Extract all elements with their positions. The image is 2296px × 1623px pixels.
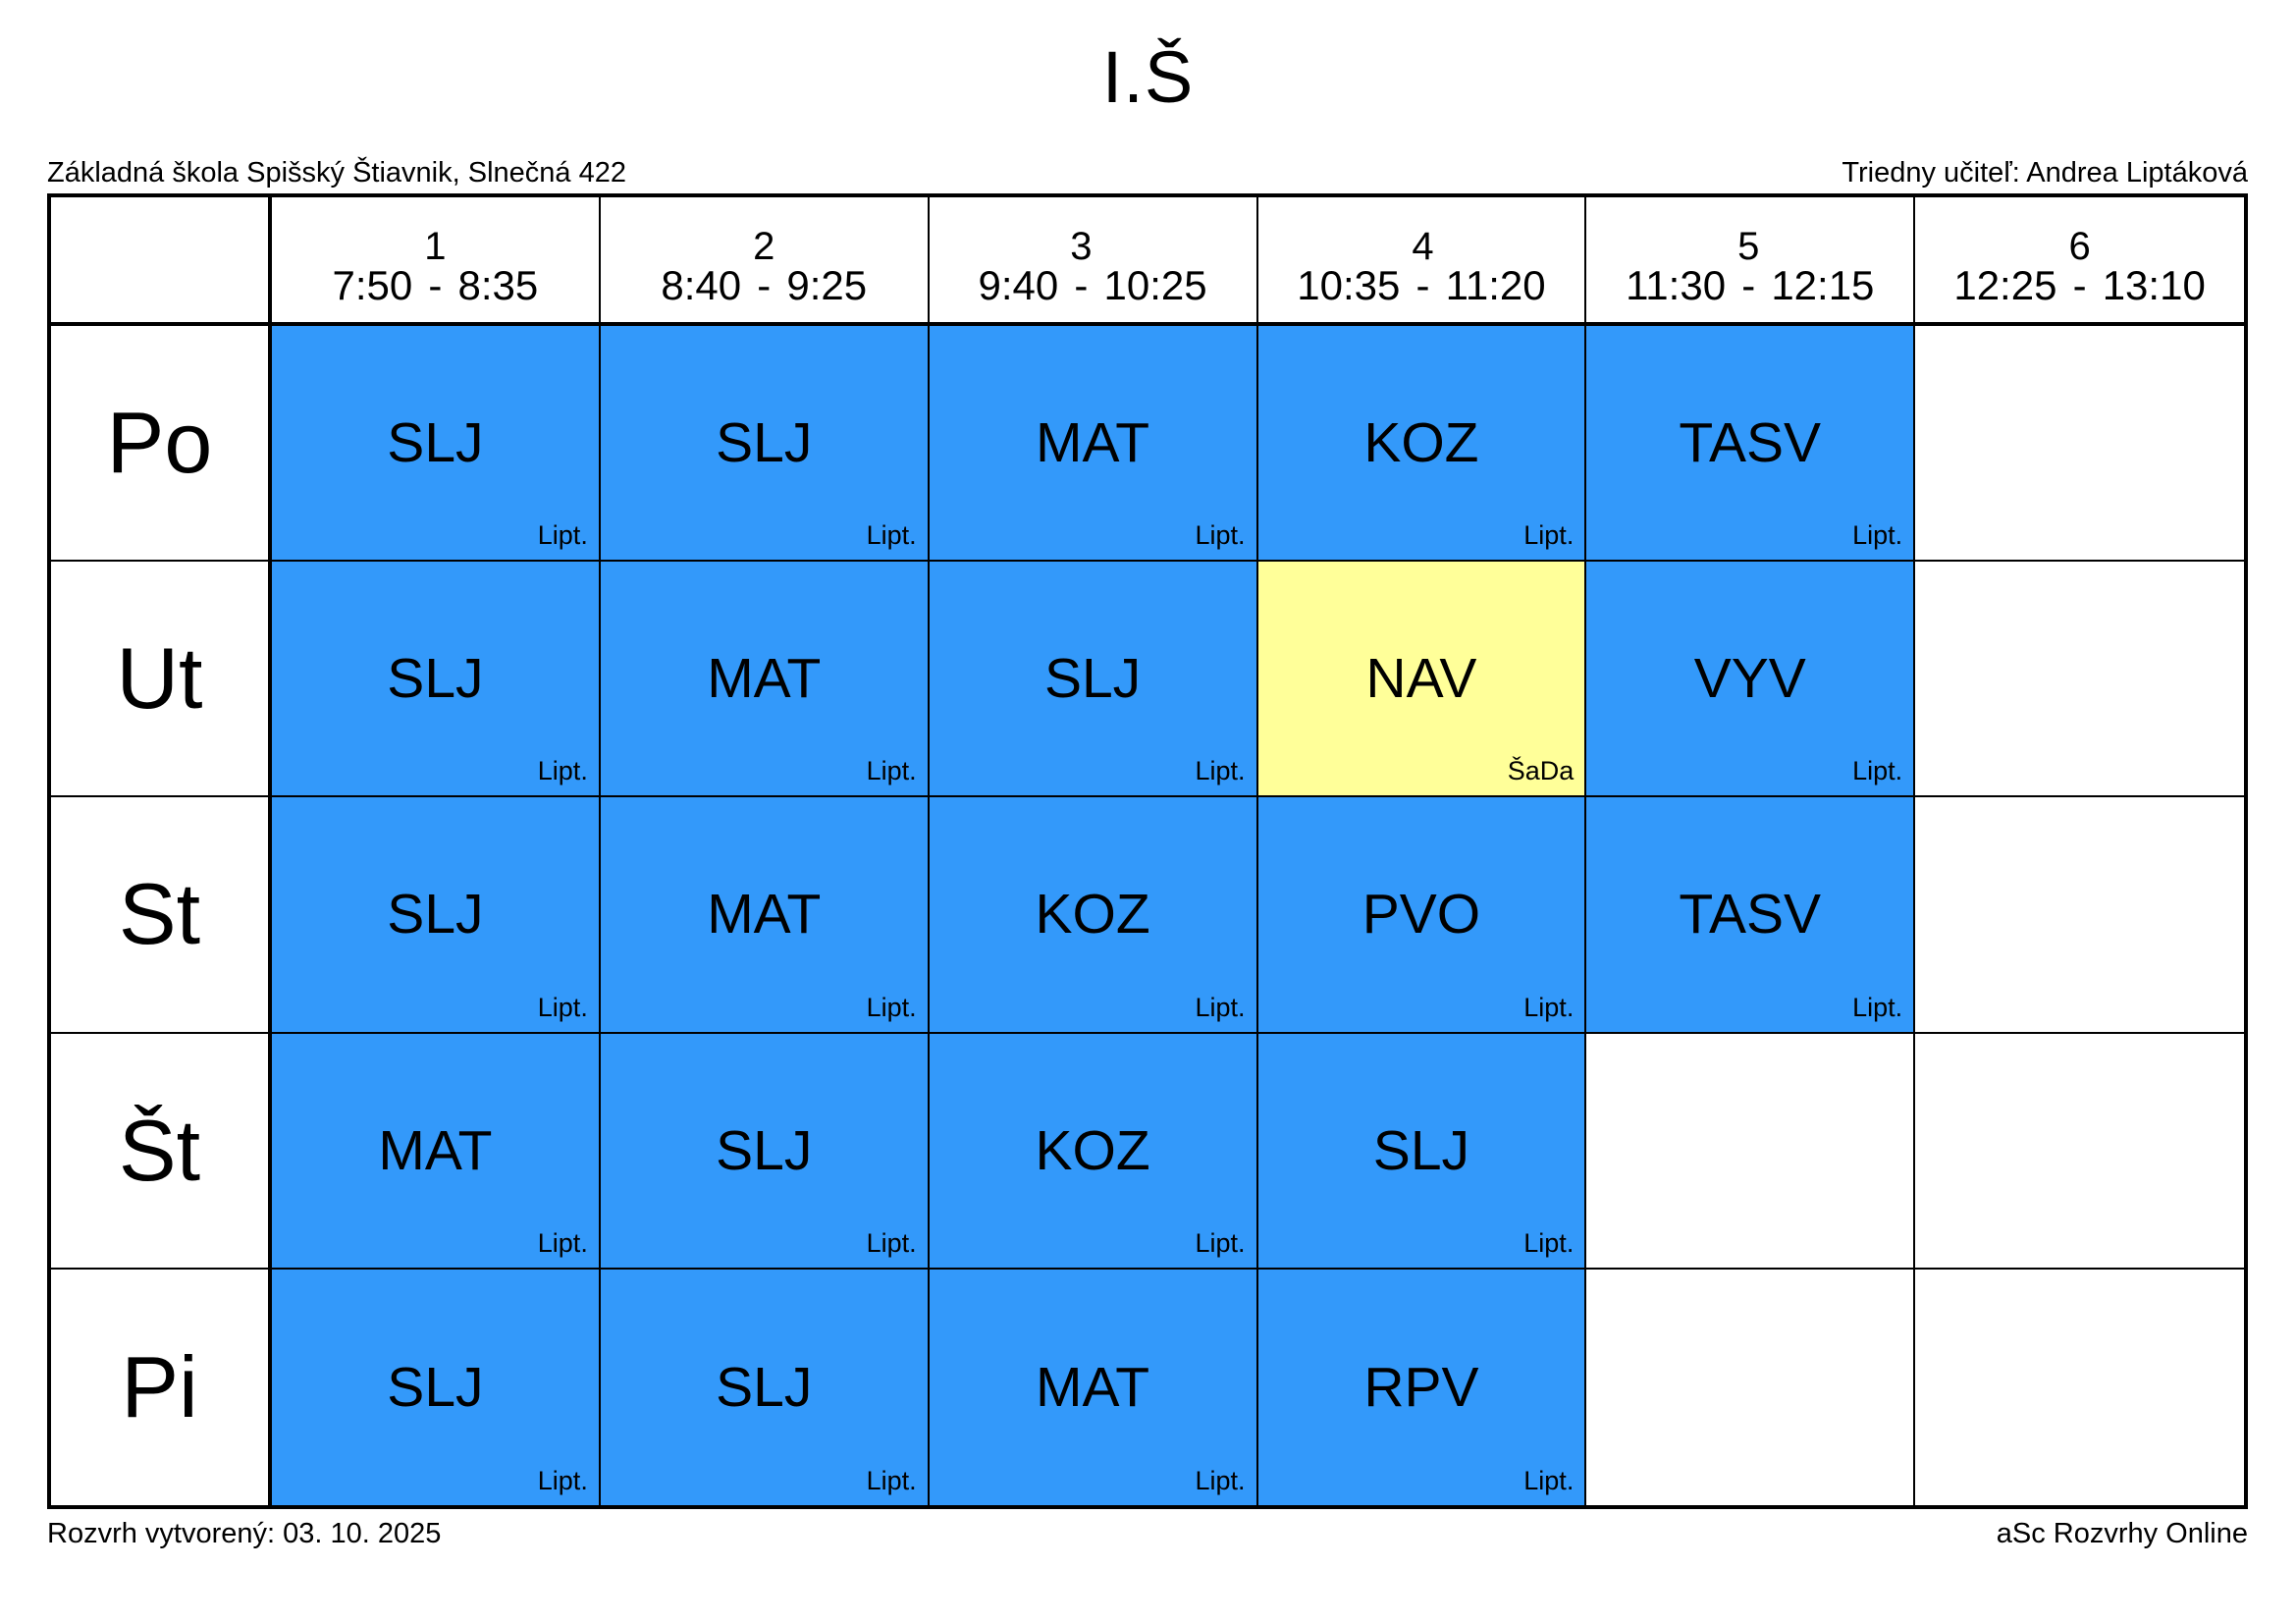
lesson-cell: MAT Lipt. bbox=[930, 326, 1258, 562]
class-teacher: Triedny učiteľ: Andrea Liptáková bbox=[1842, 157, 2248, 189]
period-number: 3 bbox=[1070, 228, 1092, 265]
empty-cell bbox=[1586, 1034, 1915, 1270]
day-label-cell-pi: Pi bbox=[51, 1270, 272, 1505]
school-name: Základná škola Spišský Štiavnik, Slnečná… bbox=[47, 157, 626, 189]
period-number-dash: 6 - bbox=[2068, 228, 2090, 306]
lesson-cell: SLJ Lipt. bbox=[1258, 1034, 1587, 1270]
created-date: Rozvrh vytvorený: 03. 10. 2025 bbox=[47, 1518, 441, 1550]
period-number: 2 bbox=[753, 228, 774, 265]
teacher-label: Lipt. bbox=[1195, 1466, 1245, 1496]
lesson-cell: SLJ Lipt. bbox=[272, 1270, 601, 1505]
period-end-time: 9:25 bbox=[786, 265, 867, 306]
time-separator: - bbox=[1741, 265, 1755, 306]
period-number-dash: 1 - bbox=[424, 228, 446, 306]
period-number-dash: 5 - bbox=[1737, 228, 1759, 306]
brand-label: aSc Rozvrhy Online bbox=[1997, 1518, 2248, 1550]
teacher-label: Lipt. bbox=[1523, 1466, 1574, 1496]
teacher-label: ŠaDa bbox=[1508, 756, 1575, 786]
day-label: Ut bbox=[51, 562, 268, 795]
period-start-time: 9:40 bbox=[979, 265, 1059, 306]
period-header-1: 7:50 1 - 8:35 bbox=[272, 197, 601, 326]
time-separator: - bbox=[428, 265, 442, 306]
empty-cell bbox=[1915, 1270, 2244, 1505]
lesson-cell: MAT Lipt. bbox=[930, 1270, 1258, 1505]
teacher-label: Lipt. bbox=[538, 756, 588, 786]
empty-cell bbox=[1586, 1270, 1915, 1505]
empty-cell bbox=[1915, 326, 2244, 562]
period-header-3: 9:40 3 - 10:25 bbox=[930, 197, 1258, 326]
teacher-label: Lipt. bbox=[867, 1228, 917, 1259]
lesson-cell: VYV Lipt. bbox=[1586, 562, 1915, 797]
lesson-cell: SLJ Lipt. bbox=[601, 1034, 930, 1270]
lesson-cell: SLJ Lipt. bbox=[930, 562, 1258, 797]
teacher-label: Lipt. bbox=[538, 520, 588, 551]
day-label-cell-ut: Ut bbox=[51, 562, 272, 797]
period-time-range: 7:50 1 - 8:35 bbox=[272, 197, 599, 322]
day-label-cell-po: Po bbox=[51, 326, 272, 562]
lesson-cell: RPV Lipt. bbox=[1258, 1270, 1587, 1505]
time-separator: - bbox=[757, 265, 771, 306]
teacher-label: Lipt. bbox=[1195, 756, 1245, 786]
period-start-time: 10:35 bbox=[1297, 265, 1400, 306]
page-title: I.Š bbox=[0, 37, 2296, 117]
day-label: St bbox=[51, 797, 268, 1031]
lesson-cell: SLJ Lipt. bbox=[601, 326, 930, 562]
lesson-cell: TASV Lipt. bbox=[1586, 326, 1915, 562]
teacher-label: Lipt. bbox=[1523, 520, 1574, 551]
lesson-cell: SLJ Lipt. bbox=[601, 1270, 930, 1505]
lesson-cell: MAT Lipt. bbox=[601, 797, 930, 1033]
period-time-range: 8:40 2 - 9:25 bbox=[601, 197, 928, 322]
lesson-cell: SLJ Lipt. bbox=[272, 562, 601, 797]
period-header-2: 8:40 2 - 9:25 bbox=[601, 197, 930, 326]
lesson-cell: TASV Lipt. bbox=[1586, 797, 1915, 1033]
lesson-cell: MAT Lipt. bbox=[601, 562, 930, 797]
period-start-time: 11:30 bbox=[1626, 265, 1726, 306]
period-time-range: 9:40 3 - 10:25 bbox=[930, 197, 1256, 322]
corner-cell bbox=[51, 197, 272, 326]
period-header-6: 12:25 6 - 13:10 bbox=[1915, 197, 2244, 326]
period-end-time: 13:10 bbox=[2103, 265, 2206, 306]
teacher-label: Lipt. bbox=[867, 1466, 917, 1496]
teacher-label: Lipt. bbox=[538, 1228, 588, 1259]
teacher-label: Lipt. bbox=[1852, 756, 1902, 786]
empty-cell bbox=[1915, 1034, 2244, 1270]
time-separator: - bbox=[2073, 265, 2087, 306]
empty-cell bbox=[1915, 797, 2244, 1033]
teacher-label: Lipt. bbox=[1195, 1228, 1245, 1259]
lesson-cell: KOZ Lipt. bbox=[930, 1034, 1258, 1270]
day-label-cell-št: Št bbox=[51, 1034, 272, 1270]
day-label: Po bbox=[51, 326, 268, 560]
teacher-label: Lipt. bbox=[867, 756, 917, 786]
period-start-time: 8:40 bbox=[661, 265, 741, 306]
period-end-time: 8:35 bbox=[458, 265, 539, 306]
period-end-time: 10:25 bbox=[1104, 265, 1207, 306]
period-number-dash: 4 - bbox=[1412, 228, 1433, 306]
teacher-label: Lipt. bbox=[1523, 993, 1574, 1023]
lesson-cell: KOZ Lipt. bbox=[930, 797, 1258, 1033]
teacher-label: Lipt. bbox=[1852, 993, 1902, 1023]
teacher-label: Lipt. bbox=[1852, 520, 1902, 551]
lesson-cell: SLJ Lipt. bbox=[272, 326, 601, 562]
lesson-cell: SLJ Lipt. bbox=[272, 797, 601, 1033]
lesson-cell: KOZ Lipt. bbox=[1258, 326, 1587, 562]
period-number: 1 bbox=[424, 228, 446, 265]
period-time-range: 10:35 4 - 11:20 bbox=[1258, 197, 1585, 322]
day-label-cell-st: St bbox=[51, 797, 272, 1033]
period-time-range: 12:25 6 - 13:10 bbox=[1915, 197, 2244, 322]
period-header-4: 10:35 4 - 11:20 bbox=[1258, 197, 1587, 326]
time-separator: - bbox=[1415, 265, 1429, 306]
lesson-cell: NAV ŠaDa bbox=[1258, 562, 1587, 797]
timetable: 7:50 1 - 8:35 8:40 2 - 9:25 9:40 3 - 10:… bbox=[47, 193, 2248, 1509]
period-start-time: 12:25 bbox=[1953, 265, 2056, 306]
teacher-label: Lipt. bbox=[867, 993, 917, 1023]
teacher-label: Lipt. bbox=[538, 993, 588, 1023]
lesson-cell: MAT Lipt. bbox=[272, 1034, 601, 1270]
teacher-label: Lipt. bbox=[867, 520, 917, 551]
teacher-label: Lipt. bbox=[538, 1466, 588, 1496]
teacher-label: Lipt. bbox=[1195, 993, 1245, 1023]
period-time-range: 11:30 5 - 12:15 bbox=[1586, 197, 1913, 322]
period-header-5: 11:30 5 - 12:15 bbox=[1586, 197, 1915, 326]
day-label: Št bbox=[51, 1034, 268, 1268]
period-end-time: 12:15 bbox=[1771, 265, 1874, 306]
lesson-cell: PVO Lipt. bbox=[1258, 797, 1587, 1033]
period-start-time: 7:50 bbox=[333, 265, 413, 306]
period-end-time: 11:20 bbox=[1446, 265, 1546, 306]
day-label: Pi bbox=[51, 1270, 268, 1505]
time-separator: - bbox=[1074, 265, 1088, 306]
period-number: 5 bbox=[1737, 228, 1759, 265]
period-number-dash: 3 - bbox=[1070, 228, 1092, 306]
empty-cell bbox=[1915, 562, 2244, 797]
period-number: 6 bbox=[2068, 228, 2090, 265]
teacher-label: Lipt. bbox=[1523, 1228, 1574, 1259]
period-number-dash: 2 - bbox=[753, 228, 774, 306]
period-number: 4 bbox=[1412, 228, 1433, 265]
teacher-label: Lipt. bbox=[1195, 520, 1245, 551]
